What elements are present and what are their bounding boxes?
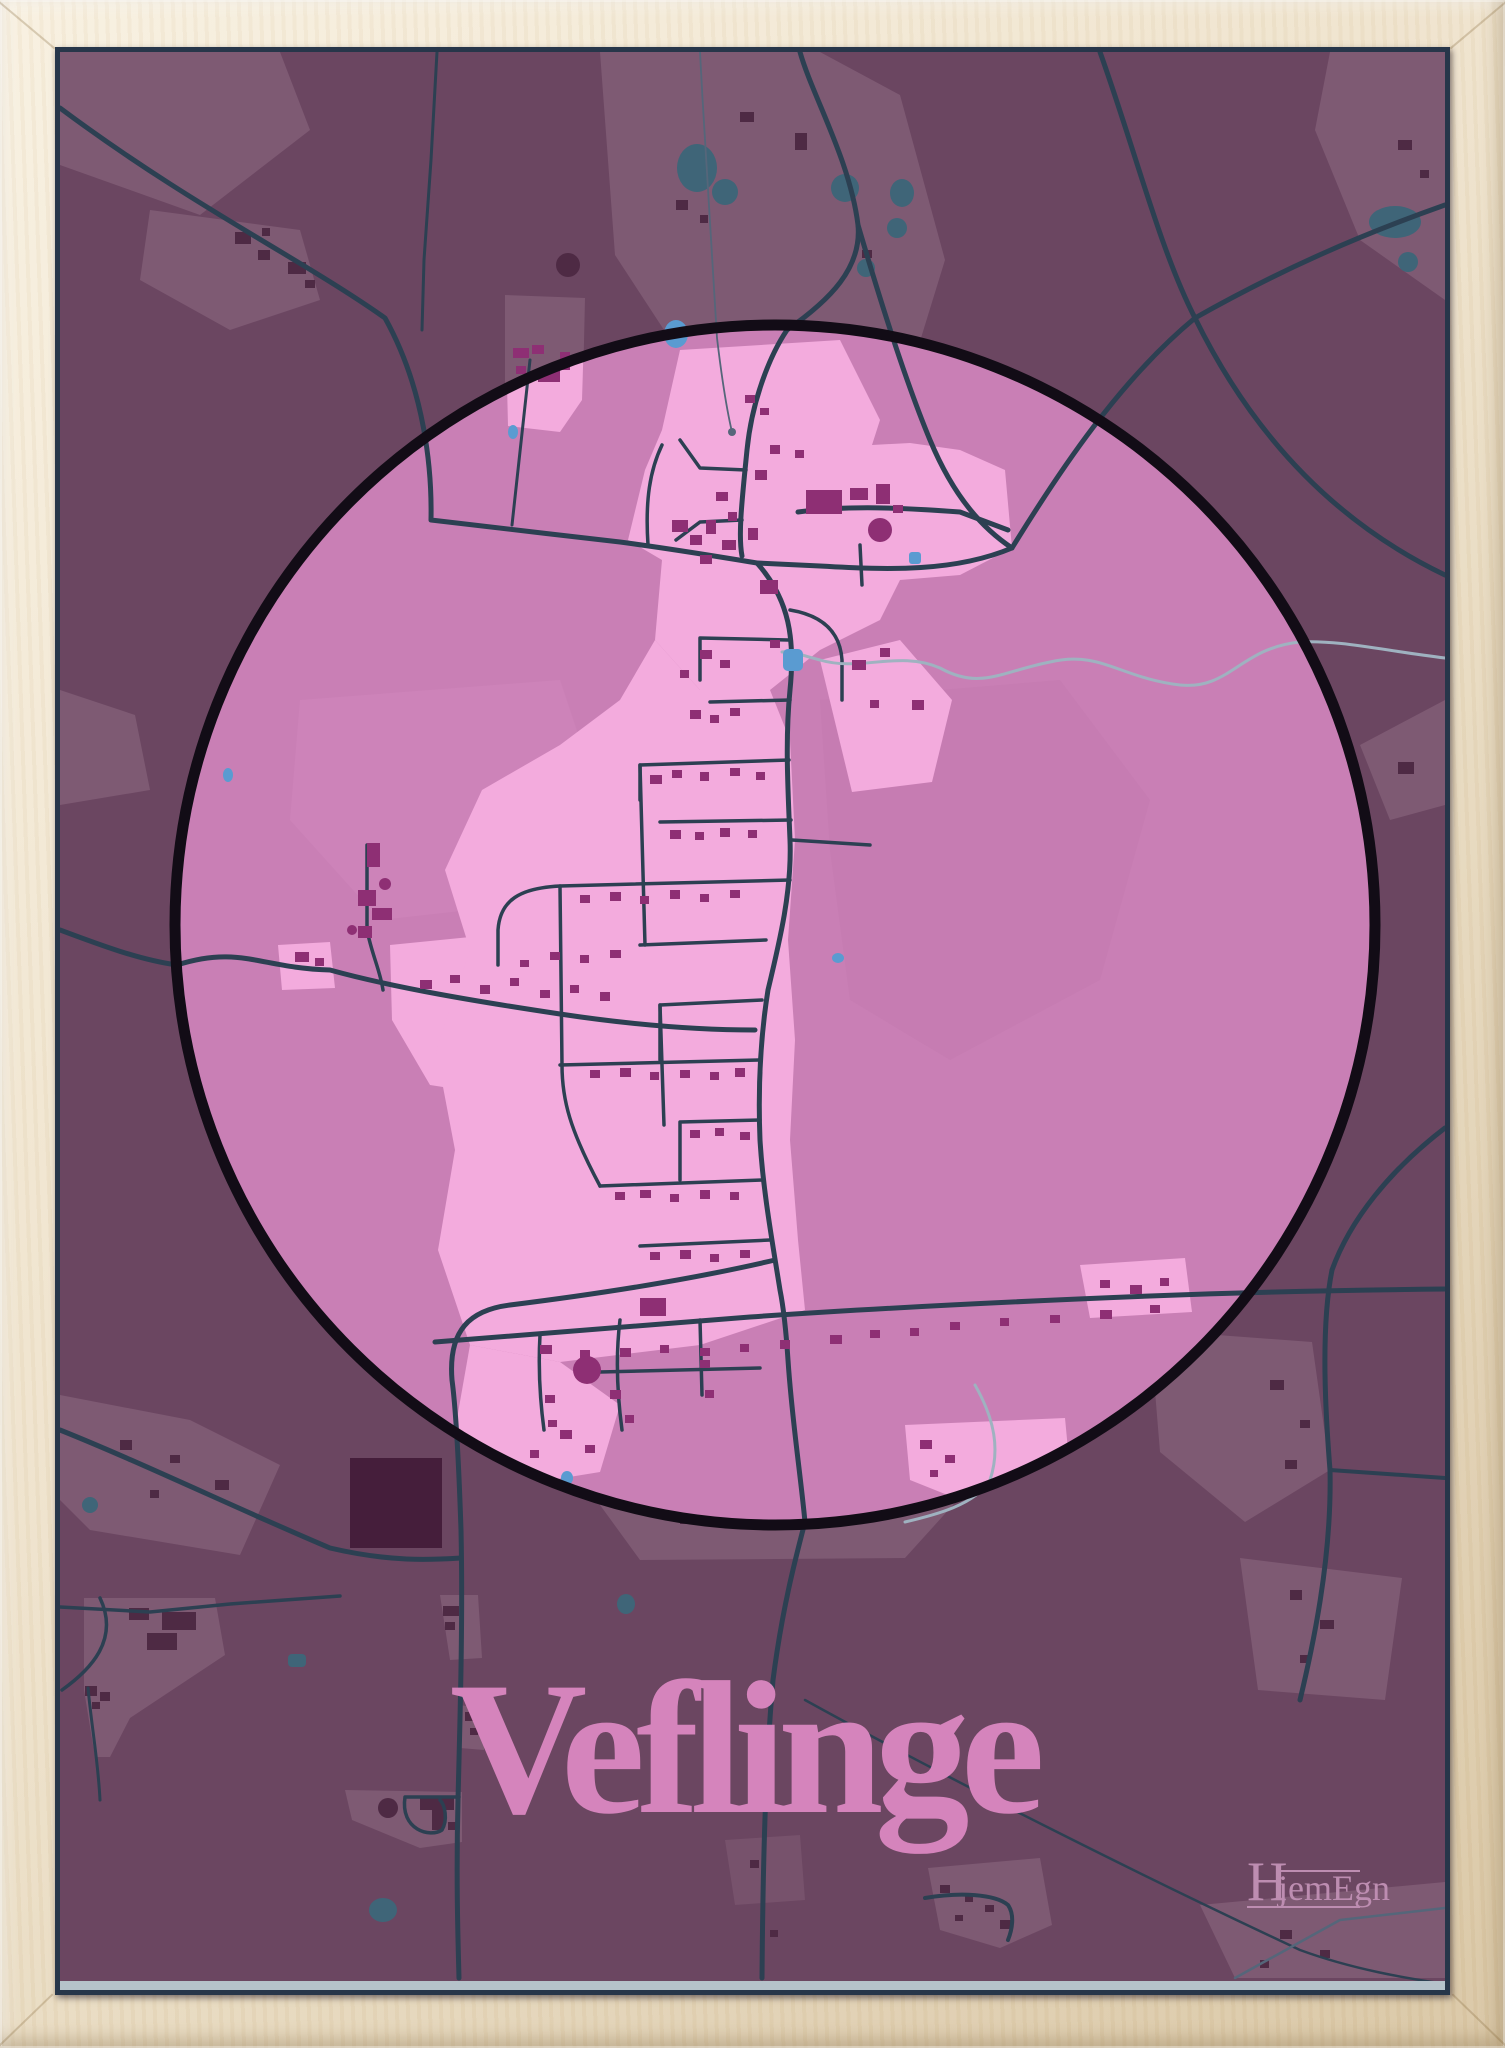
veflinge-map: Veflinge H jemEgn [60, 52, 1445, 1981]
place-title: Veflinge [450, 1644, 1041, 1854]
frame-miter-top-right [1450, 0, 1505, 49]
frame-miter-bottom-right [1452, 1993, 1505, 2047]
brand-logo: H jemEgn [1247, 1851, 1390, 1913]
frame-miter-bottom-left [0, 1993, 53, 2047]
framed-map-poster: Veflinge H jemEgn [0, 0, 1505, 2048]
map-poster: Veflinge H jemEgn [55, 47, 1450, 1995]
poster-bottom-edge [60, 1981, 1445, 1990]
dark-field-block [350, 1458, 442, 1548]
brand-rest: jemEgn [1276, 1868, 1390, 1908]
frame-miter-top-left [0, 0, 55, 49]
